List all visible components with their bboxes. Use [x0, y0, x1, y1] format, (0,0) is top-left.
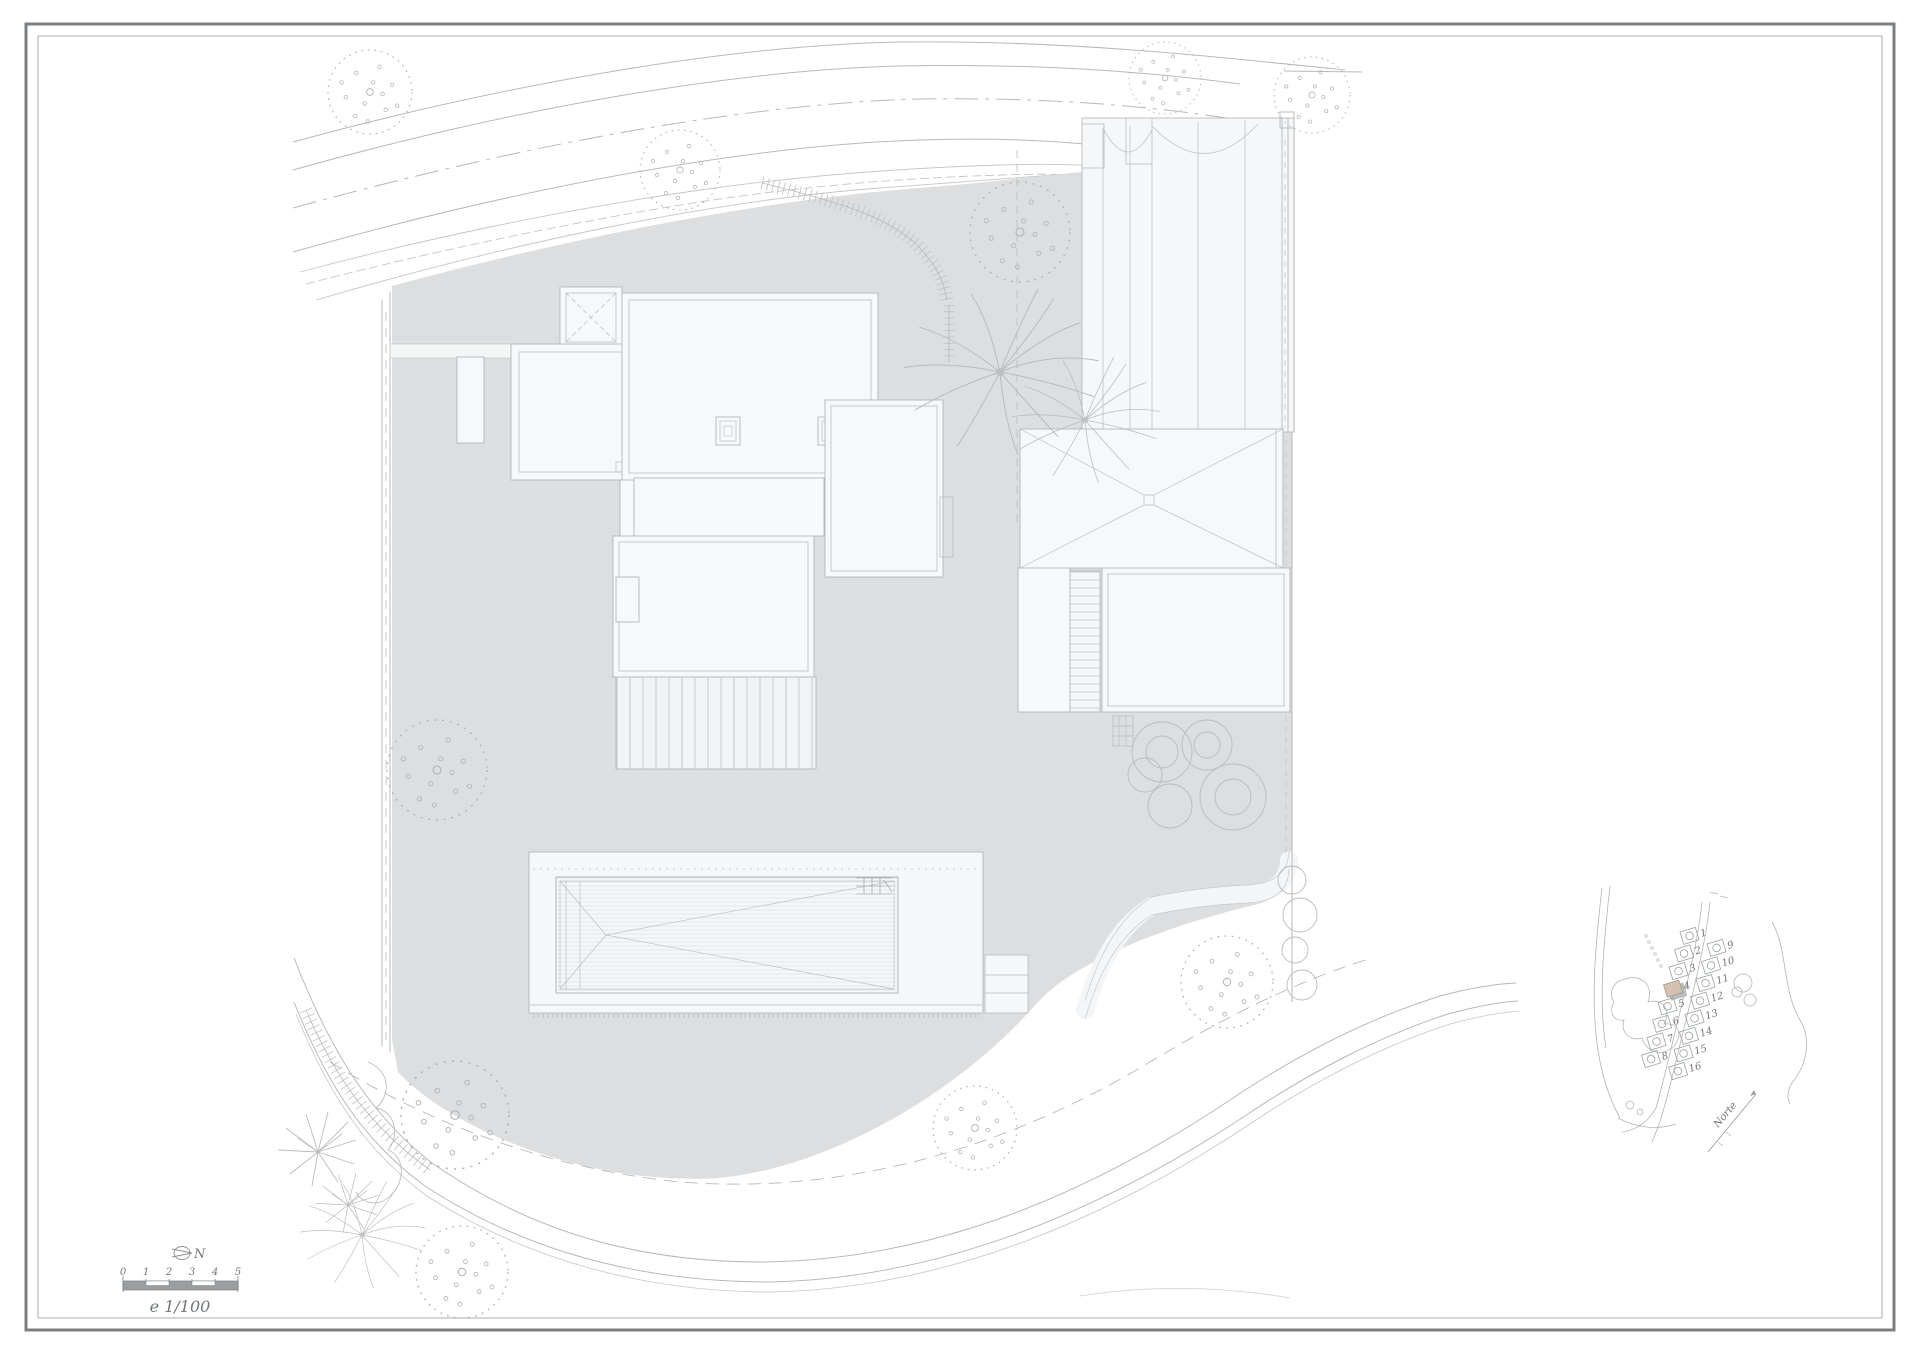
roof-lower	[613, 536, 814, 677]
plot-8: 8	[1642, 1048, 1670, 1069]
roof-east-mid	[825, 400, 953, 577]
plot-9: 9	[1707, 936, 1736, 957]
svg-text:10: 10	[1721, 955, 1737, 969]
drawing-sheet: 1 2 3 4 5 6 7 8 9 10 11 12 13 14 15 16	[0, 0, 1919, 1354]
svg-text:12: 12	[1710, 990, 1725, 1004]
svg-text:1: 1	[1699, 927, 1708, 939]
svg-text:5: 5	[235, 1267, 241, 1278]
west-boundary	[382, 292, 390, 1052]
plot-6: 6	[1653, 1012, 1682, 1033]
west-pad	[457, 357, 484, 443]
keymap-north-arrow: Norte	[1708, 1090, 1756, 1152]
roof-tower	[560, 287, 622, 348]
scale-ticks: 0 1 2 3 4 5	[120, 1267, 241, 1278]
plot-3: 3	[1669, 960, 1697, 981]
terrace-annex	[985, 955, 1028, 1013]
plot-11: 11	[1696, 970, 1730, 993]
plot-10: 10	[1702, 952, 1737, 975]
svg-text:1: 1	[143, 1267, 149, 1278]
svg-text:9: 9	[1726, 939, 1736, 952]
scale-label: e 1/100	[150, 1297, 211, 1316]
svg-text:2: 2	[1693, 945, 1703, 958]
carport-strip	[1082, 112, 1294, 432]
pergola	[616, 677, 816, 769]
svg-text:3: 3	[189, 1267, 195, 1278]
svg-text:8: 8	[1661, 1051, 1670, 1063]
scale-bar: 0 1 2 3 4 5 e 1/100	[120, 1267, 241, 1316]
plot-5: 5	[1658, 995, 1686, 1016]
exterior-stairs	[1070, 571, 1100, 712]
scarp-shrubs	[356, 1062, 401, 1203]
north-letter: N	[193, 1247, 206, 1262]
pool-terrace	[529, 852, 1028, 1016]
roof-link-band	[634, 478, 824, 536]
svg-text:13: 13	[1704, 1008, 1719, 1022]
svg-text:16: 16	[1688, 1061, 1704, 1075]
svg-text:14: 14	[1699, 1026, 1714, 1040]
keymap-cart-path	[1772, 922, 1807, 1104]
svg-text:6: 6	[1672, 1015, 1682, 1028]
site-plan-canvas: 1 2 3 4 5 6 7 8 9 10 11 12 13 14 15 16	[0, 0, 1919, 1354]
svg-text:0: 0	[120, 1267, 127, 1278]
svg-text:2: 2	[165, 1267, 172, 1278]
svg-text:15: 15	[1693, 1043, 1708, 1057]
roof-sw-wing	[1018, 568, 1070, 712]
pool	[556, 877, 898, 993]
plot-12: 12	[1691, 988, 1725, 1011]
plot-4-highlighted: 4	[1664, 977, 1693, 1001]
plot-2: 2	[1675, 942, 1703, 963]
svg-text:5: 5	[1677, 998, 1686, 1010]
chimney	[616, 577, 639, 622]
plot-13: 13	[1685, 1005, 1719, 1028]
keymap-north-label: Norte	[1711, 1100, 1739, 1130]
roof-hip	[1020, 429, 1283, 568]
svg-text:4: 4	[211, 1267, 218, 1278]
keymap-golf-edge	[1594, 888, 1620, 1118]
north-symbol: N	[172, 1247, 206, 1263]
roof-east-lower	[1102, 568, 1290, 712]
plot-15: 15	[1674, 1040, 1708, 1063]
keymap-trail-dots	[1645, 935, 1663, 968]
keymap-plots: 1 2 3 4 5 6 7 8 9 10 11 12 13 14 15 16	[1642, 925, 1737, 1081]
key-map: 1 2 3 4 5 6 7 8 9 10 11 12 13 14 15 16	[1594, 886, 1806, 1152]
svg-text:11: 11	[1715, 973, 1730, 987]
